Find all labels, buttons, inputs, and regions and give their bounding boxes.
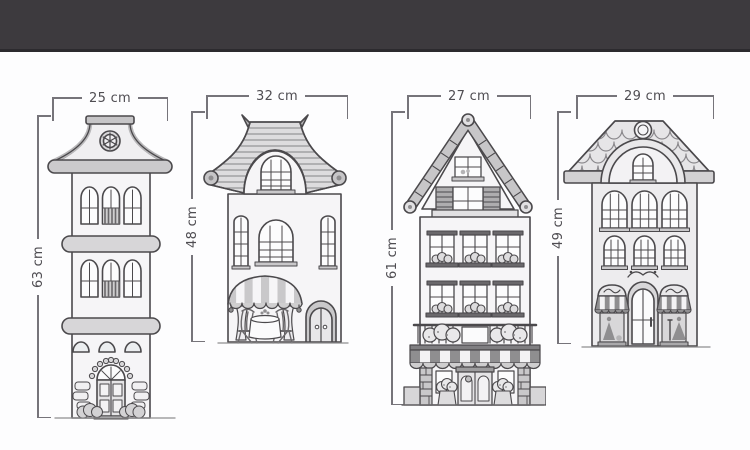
shop-awning xyxy=(410,345,540,369)
dimension-tick xyxy=(191,111,205,113)
houses-size-diagram: 25 cm 63 cm xyxy=(0,52,750,450)
dimension-line xyxy=(191,255,193,343)
house-1-width-label: 25 cm xyxy=(89,92,131,105)
round-wheel-window xyxy=(100,131,120,151)
shop-door xyxy=(456,367,494,405)
dimension-line xyxy=(37,115,39,239)
dimension-line xyxy=(37,295,39,419)
dimension-line xyxy=(206,95,249,97)
house-4-width-label: 29 cm xyxy=(624,90,666,103)
house-1-upper-floor-windows xyxy=(81,187,141,224)
house-1-height-label: 63 cm xyxy=(31,246,46,288)
house-3-gable xyxy=(404,114,532,218)
dimension-line xyxy=(191,111,193,199)
cornice-band xyxy=(62,318,160,334)
house-1-height-dimension: 63 cm xyxy=(30,115,46,418)
dimension-line xyxy=(391,111,393,230)
shop-front xyxy=(404,367,546,405)
dimension-line xyxy=(138,97,168,99)
pagoda-house-illustration xyxy=(45,110,185,420)
boutique-door xyxy=(628,282,658,346)
dimension-line xyxy=(52,97,82,99)
house-2-width-label: 32 cm xyxy=(256,90,298,103)
house-1-roof xyxy=(48,116,172,173)
dimension-line xyxy=(497,95,531,97)
dimension-line xyxy=(673,95,714,97)
dimension-line xyxy=(391,286,393,405)
dimension-line xyxy=(407,95,441,97)
boutique-house-illustration xyxy=(558,114,720,349)
cafe-house-illustration xyxy=(198,114,353,344)
house-3-width-dimension: 27 cm xyxy=(407,88,531,104)
house-1-middle-floor-windows xyxy=(81,260,141,297)
dimension-line xyxy=(576,95,617,97)
top-bar xyxy=(0,0,750,52)
cornice-band xyxy=(62,236,160,252)
balcony-row xyxy=(414,324,536,343)
display-window-left xyxy=(595,285,629,346)
attic-window xyxy=(452,157,484,181)
house-2-width-dimension: 32 cm xyxy=(206,88,348,104)
house-4-width-dimension: 29 cm xyxy=(576,88,714,104)
house-3-width-label: 27 cm xyxy=(448,90,490,103)
display-window-right xyxy=(657,285,691,346)
dimension-tick xyxy=(557,111,571,113)
dimension-line xyxy=(305,95,348,97)
bakery-house-illustration xyxy=(398,113,546,407)
house-4-middle-windows xyxy=(602,236,688,270)
house-2-arched-door xyxy=(306,301,336,342)
house-1-width-dimension: 25 cm xyxy=(52,90,168,106)
diagram-canvas: 25 cm 63 cm xyxy=(0,0,750,450)
house-4-upper-windows xyxy=(600,191,690,232)
